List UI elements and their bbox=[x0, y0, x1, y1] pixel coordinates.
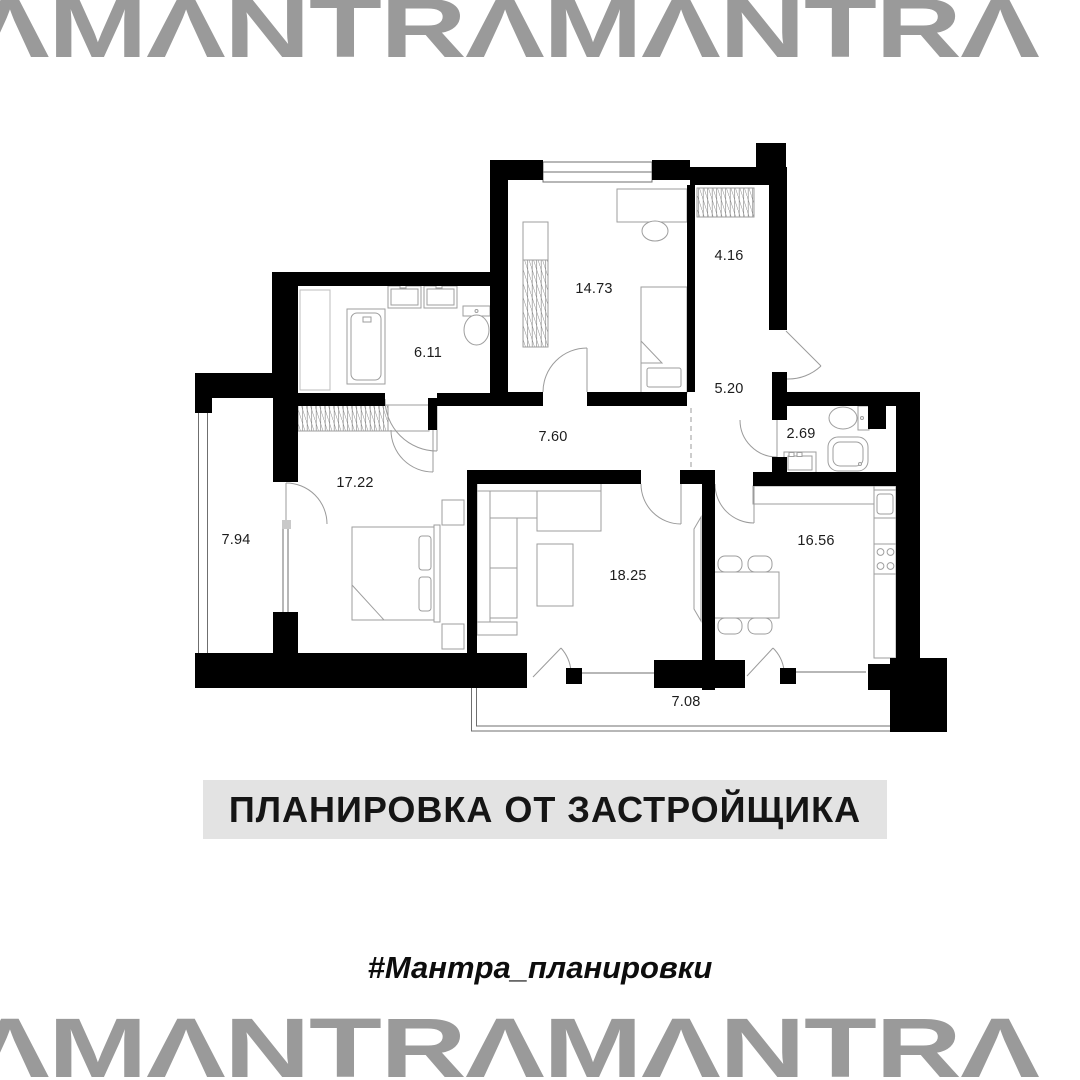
hashtag-text: #Мантра_планировки bbox=[0, 950, 1080, 986]
chair bbox=[718, 556, 742, 572]
shaft bbox=[300, 290, 330, 390]
bathtub bbox=[347, 309, 385, 384]
toilet-bathroom bbox=[463, 306, 490, 345]
banner: ПЛАНИРОВКА ОТ ЗАСТРОЙЩИКА bbox=[203, 780, 887, 839]
desk bbox=[617, 189, 687, 241]
room-area-label: 16.56 bbox=[797, 533, 834, 549]
door-living bbox=[641, 484, 681, 524]
tv-unit bbox=[694, 517, 701, 621]
balcony-door-glazing bbox=[283, 528, 288, 612]
room-area-label: 4.16 bbox=[714, 248, 743, 264]
door-wc bbox=[740, 420, 777, 457]
door-kitchen bbox=[715, 484, 754, 523]
nightstand bbox=[442, 500, 464, 525]
door-bedroom-left bbox=[391, 430, 433, 472]
single-bed bbox=[641, 287, 687, 393]
wardrobe-closet bbox=[697, 188, 754, 217]
brand-logo-bottom: ΛMΛNTRΛMΛNTRΛ bbox=[0, 1006, 1038, 1080]
chair bbox=[718, 618, 742, 634]
chair bbox=[748, 618, 772, 634]
coffee-table bbox=[537, 544, 573, 606]
room-area-label: 7.08 bbox=[671, 694, 700, 710]
door-pivot bbox=[282, 520, 291, 529]
toilet-wc bbox=[829, 406, 869, 430]
banner-title: ПЛАНИРОВКА ОТ ЗАСТРОЙЩИКА bbox=[229, 789, 861, 831]
wardrobe-bedroom-top bbox=[523, 222, 548, 347]
double-bed bbox=[352, 500, 464, 649]
chair bbox=[748, 556, 772, 572]
room-area-label: 6.11 bbox=[414, 345, 442, 361]
washing-machine bbox=[784, 452, 816, 474]
room-area-label: 7.60 bbox=[538, 429, 567, 445]
door-bedroom-top bbox=[543, 348, 587, 392]
dining-table bbox=[713, 556, 779, 634]
room-area-label: 2.69 bbox=[786, 426, 815, 442]
room-area-label: 5.20 bbox=[714, 381, 743, 397]
nightstand bbox=[442, 624, 464, 649]
door-living-balcony bbox=[533, 648, 571, 677]
room-area-label: 7.94 bbox=[221, 532, 250, 548]
double-sink bbox=[388, 283, 457, 308]
wardrobe-bedroom-left bbox=[298, 405, 429, 431]
furniture-layer bbox=[298, 188, 896, 658]
entrance-door bbox=[786, 331, 821, 379]
poster-page: ΛMΛNTRΛMΛNTRΛ bbox=[0, 0, 1080, 1080]
door-kitchen-balcony bbox=[747, 648, 784, 676]
shower-tray bbox=[828, 437, 868, 471]
room-area-label: 14.73 bbox=[575, 281, 612, 297]
chair bbox=[642, 221, 668, 241]
room-area-label: 18.25 bbox=[609, 568, 646, 584]
window-bedroom-top bbox=[543, 162, 652, 182]
loggia-left-glazing bbox=[199, 413, 208, 653]
room-area-label: 17.22 bbox=[336, 475, 373, 491]
stove bbox=[874, 544, 896, 574]
door-loggia-left bbox=[286, 483, 327, 524]
floor-plan: 14.73 4.16 6.11 5.20 7.60 2.69 17.22 7.9… bbox=[0, 0, 1080, 1080]
